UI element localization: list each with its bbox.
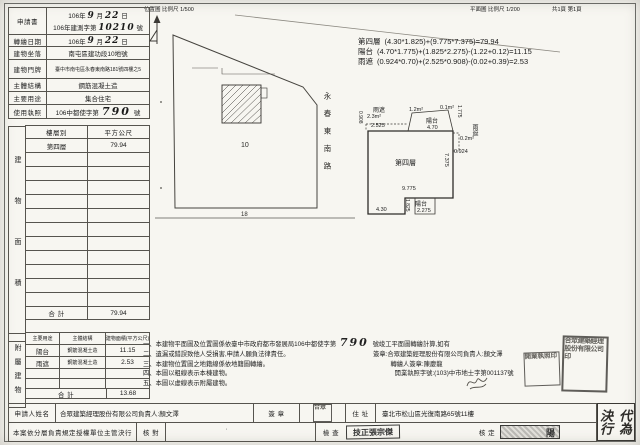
annex-total-label: 合 計 — [26, 389, 107, 398]
parcel-boundary — [173, 35, 317, 208]
note1-permit-number: 790 — [340, 336, 369, 349]
note-line-3: 三、本建物位置圖之地籍線係依地籍圖轉繪。 轉繪人簽章:陳慶龍 — [143, 359, 443, 368]
building-address-value: 臺中市南屯區永春東南路181號四樓之5 — [47, 60, 149, 78]
note-line-1: 一、本建物平面圖及位置圖係依臺中市政府都市發展局106中都使字第 790 號竣工… — [143, 336, 450, 349]
road-name-label: 永春東南路 — [322, 92, 333, 194]
annex-row-balcony: 陽台 鋼筋混凝土造 11.15 — [25, 344, 150, 357]
sign-label: 簽 章 — [254, 404, 300, 422]
table-row: 使用執照 106中都使字第 790 號 — [8, 104, 150, 119]
adjacent-parcel-number: 18 — [241, 212, 248, 218]
area-empty-row — [25, 152, 150, 167]
app-month-unit: 月 — [97, 13, 104, 20]
main-floor-label: 第四層 — [395, 158, 416, 168]
area-header-row: 樓層別 平方公尺 — [25, 125, 150, 139]
main-width-dim: 9.775 — [402, 186, 416, 192]
td-day-unit: 日 — [121, 36, 128, 46]
license-seal: 開業執照印 — [523, 351, 560, 386]
annex-use: 雨遮 — [26, 357, 60, 368]
note5-text: 五、本圖以虛線表示附屬建物。 — [143, 380, 231, 387]
app-day: 22 — [105, 11, 120, 21]
annex-structure: 鋼筋混凝土造 — [60, 357, 106, 368]
use-permit-value: 106中都使字第 790 號 — [47, 105, 149, 118]
deduction-right: 0.1m² — [440, 105, 454, 111]
permit-prefix: 106中都使字第 — [56, 107, 99, 117]
transcribe-date-label: 轉繪日期 — [9, 35, 47, 46]
note1-prefix: 一、本建物平面圖及位置圖係依臺中市政府都市發展局106中都使字第 — [143, 341, 336, 348]
application-label: 申請書 — [9, 8, 47, 34]
area-empty-row — [25, 222, 150, 237]
deduction-left: 1.2m² — [409, 107, 423, 113]
sign-stamp-cell: 合眾 — [300, 404, 346, 422]
authorization-label: 本案依分層負責規定授權單位主管決行 — [9, 423, 137, 441]
annex-col-structure: 主體結構 — [60, 333, 106, 344]
area-empty-row — [25, 166, 150, 181]
handwritten-signature-scribble — [464, 372, 490, 392]
calc-line-floor4: 第四層 (4.30*1.825)+(9.775*7.375)=79.94 — [358, 36, 532, 46]
area-empty-row — [25, 208, 150, 223]
right-canopy-height: 0.924 — [454, 149, 468, 155]
top-balcony-label: 陽台 — [426, 116, 438, 125]
ext-width-dim: 4.30 — [376, 207, 387, 213]
calc-line-balcony: 陽台 (4.70*1.775)+(1.825*2.275)-(1.22+0.12… — [358, 46, 532, 56]
building-area-side-label: 建物面積 — [8, 126, 26, 342]
area-total-value: 79.94 — [88, 307, 149, 319]
annex-col-use: 主要用途 — [26, 333, 60, 344]
approve-label: 核 定 — [474, 423, 500, 441]
right-canopy-label: 雨遮 — [470, 124, 479, 136]
annex-empty-row — [25, 368, 150, 379]
table-row: 建物門牌 臺中市南屯區永春東南路181號四樓之5 — [8, 59, 150, 79]
inspect-label: 檢 查 — [316, 423, 346, 441]
calc-line-canopy: 雨遮 (0.924*0.70)+(2.525*0.908)-(0.02+0.39… — [358, 56, 532, 66]
note1-suffix: 號竣工平面圖轉繪計算,如有 — [373, 341, 450, 348]
area-empty-row — [25, 180, 150, 195]
td-year: 106年 — [68, 36, 85, 46]
area-empty-row — [25, 292, 150, 307]
application-value: 106年 9 月 22 日 106年建測字第 10210 號 — [47, 8, 149, 34]
area-total-row: 合 計 79.94 — [25, 306, 150, 320]
td-month: 9 — [87, 36, 94, 46]
note3-text: 三、本建物位置圖之地籍線係依地籍圖轉繪。 — [143, 361, 269, 368]
td-day: 22 — [105, 36, 120, 46]
app-year: 106年 — [68, 13, 85, 20]
annex-row-canopy: 雨遮 鋼筋混凝土造 2.53 — [25, 356, 150, 369]
structure-label: 主體結構 — [9, 79, 47, 91]
check-proof-label: 核 對 — [137, 423, 166, 441]
application-doc-number: 106年建測字第 10210 號 — [53, 22, 143, 33]
annex-total-row: 合 計 13.68 — [25, 388, 150, 399]
annex-structure: 鋼筋混凝土造 — [60, 345, 106, 356]
permit-number: 790 — [102, 105, 131, 118]
area-empty-row — [25, 236, 150, 251]
transcriber-signature-line: 轉繪人簽章:陳慶龍 — [390, 361, 442, 368]
company-seal: 合眾 — [313, 404, 332, 422]
inspect-stamp-cell: 技正張宗傑 — [346, 423, 474, 441]
area-total-label: 合 計 — [26, 307, 88, 319]
bottom-balcony-width: 2.275 — [417, 208, 431, 214]
neighbor-mark — [160, 187, 162, 189]
annex-header-row: 主要用途 主體結構 建物面積(平方公尺) — [25, 332, 150, 345]
doc-prefix: 106年建測字第 — [53, 25, 96, 32]
col-floor: 樓層別 — [26, 126, 88, 138]
area-row-floor4: 第四層 79.94 — [25, 138, 150, 153]
app-month: 9 — [87, 11, 94, 21]
area-empty-row — [25, 194, 150, 209]
area-empty-row — [25, 264, 150, 279]
right-canopy-area: 0.2m² — [460, 136, 474, 142]
app-day-unit: 日 — [121, 13, 128, 20]
calc-formula: (4.30*1.825)+(9.775*7.375)=79.94 — [385, 37, 499, 46]
note-line-5: 五、本圖以虛線表示附屬建物。 — [143, 378, 231, 387]
approve-stamp-cell: 陽 — [500, 423, 596, 441]
bottom-balcony-height: 1.825 — [404, 199, 410, 212]
calc-formula: (0.924*0.70)+(2.525*0.908)-(0.02+0.39)=2… — [377, 57, 528, 66]
main-unit-outline — [368, 131, 453, 214]
floor-name: 第四層 — [26, 139, 88, 152]
top-balcony-height: 1.775 — [456, 105, 462, 118]
check-proof-cell: ' — [166, 423, 316, 441]
annex-table: 主要用途 主體結構 建物面積(平方公尺) 陽台 鋼筋混凝土造 11.15 雨遮 … — [25, 333, 150, 399]
table-row: 申請書 106年 9 月 22 日 106年建測字第 10210 號 — [8, 7, 150, 35]
calc-label: 雨遮 — [358, 56, 373, 67]
address-value: 臺北市松山區光復南路65號11樓 — [376, 404, 596, 422]
area-empty-row — [25, 278, 150, 293]
annex-empty-row — [25, 378, 150, 389]
transcribe-date-value: 106年 9 月 22 日 — [47, 35, 149, 46]
parcel-number: 10 — [241, 142, 249, 149]
note2-text: 二、遺漏或錯誤致他人受損害,申請人願負法律責任。 — [143, 351, 290, 358]
note4-text: 四、本圖以粗線表示本棟建物。 — [143, 370, 231, 377]
approval-row: 本案依分層負責規定授權單位主管決行 核 對 ' 檢 查 技正張宗傑 核 定 陽 — [8, 422, 597, 442]
td-month-unit: 月 — [97, 36, 104, 46]
survey-result-sheet: 位置圖 比例尺 1/500 平面圖 比例尺 1/200 共1頁 第1頁 申請書 … — [0, 0, 640, 445]
building-site-value: 南屯區建功段10地號 — [47, 47, 149, 59]
building-info-table: 申請書 106年 9 月 22 日 106年建測字第 10210 號 轉繪日期 — [8, 8, 150, 119]
annex-side-label: 附屬建物 — [8, 333, 26, 408]
delegate-decision-stamp: 代為決行 — [597, 403, 635, 441]
left-canopy-label: 雨遮 — [373, 105, 385, 114]
table-row: 主要用途 集合住宅 — [8, 91, 150, 105]
main-use-value: 集合住宅 — [47, 92, 149, 104]
table-row: 轉繪日期 106年 9 月 22 日 — [8, 34, 150, 47]
annex-use: 陽台 — [26, 345, 60, 356]
applicant-name-label: 申請人姓名 — [9, 404, 56, 422]
use-permit-label: 使用執照 — [9, 105, 47, 118]
area-empty-row — [25, 250, 150, 265]
note-line-2: 二、遺漏或錯誤致他人受損害,申請人願負法律責任。 簽章:合眾建築經理股份有限公司… — [143, 349, 503, 358]
neighbor-mark — [160, 101, 162, 103]
left-canopy-height: 0.908 — [357, 111, 363, 124]
address-label: 住 址 — [346, 404, 376, 422]
table-row: 建物坐落 南屯區建功段10地號 — [8, 46, 150, 60]
note-line-4: 四、本圖以粗線表示本棟建物。 開業執照字號:(103)中市地士字第001137號 — [143, 368, 514, 377]
bottom-balcony-label: 陽台 — [415, 199, 427, 208]
north-arrow-icon — [150, 15, 161, 44]
main-height-dim: 7.375 — [443, 153, 449, 167]
calc-formula: (4.70*1.775)+(1.825*2.275)-(1.22+0.12)=1… — [377, 47, 532, 56]
table-row: 主體結構 鋼筋混凝土造 — [8, 78, 150, 92]
application-date: 106年 9 月 22 日 — [68, 10, 127, 21]
building-area-table: 樓層別 平方公尺 第四層 79.94 合 計 79.94 — [25, 126, 150, 320]
license-number-line: 開業執照字號:(103)中市地士字第001137號 — [395, 370, 514, 377]
main-use-label: 主要用途 — [9, 92, 47, 104]
inspector-stamp: 技正張宗傑 — [346, 425, 400, 440]
company-square-seal: 合眾建築經理股份有限公司印 — [561, 335, 608, 392]
doc-number: 10210 — [98, 23, 134, 33]
structure-value: 鋼筋混凝土造 — [47, 79, 149, 91]
approver-stamp: 陽 — [500, 425, 560, 439]
calculation-block: 第四層 (4.30*1.825)+(9.775*7.375)=79.94 陽台 … — [358, 36, 532, 66]
subject-building-hatch — [222, 85, 267, 123]
building-address-label: 建物門牌 — [9, 60, 47, 78]
annex-total-value: 13.68 — [107, 389, 149, 398]
left-canopy-area: 2.3m² — [367, 114, 381, 120]
left-canopy-width: 2.525 — [371, 123, 385, 129]
signature-line: 簽章:合眾建築經理股份有限公司負責人:顏文澤 — [373, 351, 502, 358]
top-balcony-width: 4.70 — [427, 125, 438, 131]
applicant-name-value: 合眾建築經理股份有限公司負責人:顏文澤 — [56, 404, 254, 422]
applicant-row: 申請人姓名 合眾建築經理股份有限公司負責人:顏文澤 簽 章 合眾 住 址 臺北市… — [8, 403, 597, 423]
building-site-label: 建物坐落 — [9, 47, 47, 59]
